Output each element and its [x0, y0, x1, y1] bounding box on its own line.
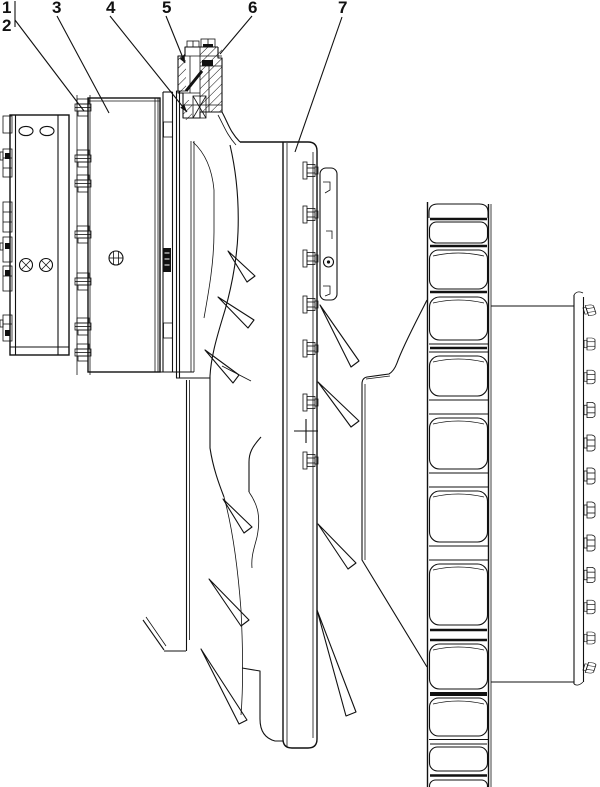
leader-line-7 — [295, 17, 342, 152]
flange-bolt — [582, 304, 596, 316]
disc-bolt-column — [303, 162, 318, 469]
bearing-block — [164, 323, 173, 338]
callout-label-7: 7 — [338, 0, 347, 17]
sprocket-tooth — [429, 204, 488, 218]
sprocket-tooth — [430, 297, 488, 340]
flange-bolt-ring — [574, 292, 596, 685]
flange-bolt — [584, 338, 595, 350]
disc-bolt — [303, 250, 318, 267]
sprocket-teeth — [428, 202, 492, 787]
disc-bolt — [303, 296, 318, 313]
disc-bolt — [303, 394, 318, 411]
flange-bolt — [584, 632, 595, 644]
callout-label-3: 3 — [52, 0, 61, 17]
fan-blade — [318, 382, 359, 427]
fan-blade — [320, 305, 359, 367]
fan-blade — [209, 579, 249, 626]
flange-bolt — [584, 402, 595, 417]
cooler-plate — [0, 115, 69, 355]
sprocket-tooth — [430, 564, 488, 625]
flange-bolt — [584, 600, 595, 614]
seal-ring-section — [202, 60, 213, 66]
disc-bolt — [303, 340, 318, 357]
fan-blade — [228, 251, 255, 282]
flange-bolt — [584, 535, 595, 551]
cooler-screw — [40, 259, 53, 272]
retainer-plate — [320, 168, 337, 300]
flange-bolt — [584, 468, 595, 484]
flange-bolt — [584, 370, 595, 384]
hub-cone — [362, 300, 427, 667]
hub-top-bolts — [187, 39, 215, 47]
technical-assembly-drawing: 1 2 3 4 5 6 7 — [0, 0, 600, 787]
sprocket-tooth — [430, 698, 488, 736]
flange-bolt — [582, 662, 596, 674]
sectioned-hub — [178, 39, 240, 145]
callout-label-4: 4 — [106, 0, 116, 17]
sprocket-tooth — [430, 250, 488, 289]
shroud-bottom-step — [242, 668, 283, 741]
fan-blade — [317, 610, 356, 716]
fan-blade — [223, 499, 252, 533]
center-axis-mark — [294, 419, 318, 443]
leader-line-1-2 — [15, 20, 84, 111]
sprocket-tooth — [430, 491, 488, 542]
seal-block — [163, 248, 171, 272]
assembly-drawing-svg: 1 2 3 4 5 6 7 — [0, 0, 600, 787]
callout-label-1: 1 — [2, 0, 11, 17]
sprocket-tooth — [430, 747, 488, 771]
hub-scurve-inner — [218, 115, 236, 145]
sprocket-tooth — [430, 418, 488, 469]
fan-shroud-profile — [143, 142, 283, 741]
flange-bolt — [584, 435, 595, 451]
slot-hole — [40, 126, 54, 135]
flange-bolt — [584, 502, 595, 518]
callout-label-2: 2 — [2, 16, 11, 35]
callout-label-5: 5 — [162, 0, 171, 17]
drive-unit-screw — [109, 251, 123, 265]
slot-hole — [19, 126, 33, 135]
fan-blades — [201, 251, 359, 724]
flange-bolt — [584, 567, 595, 582]
sprocket-tooth — [430, 644, 488, 689]
drum-housing — [491, 306, 574, 682]
bearing-block — [164, 122, 173, 137]
sprocket-tooth — [430, 780, 488, 787]
leader-line-6 — [220, 16, 252, 54]
cooler-screw — [20, 259, 33, 272]
disc-bolt — [303, 162, 318, 179]
drive-unit-body — [88, 98, 160, 372]
hub-scurve-outer — [222, 112, 240, 142]
fan-flange — [160, 91, 210, 378]
disc-bolt — [303, 206, 318, 223]
callout-label-6: 6 — [248, 0, 257, 17]
sprocket-tooth — [430, 222, 488, 243]
disc-bolt — [303, 452, 318, 469]
fan-blade — [218, 297, 254, 328]
fan-blade — [201, 649, 247, 724]
sprocket-tooth — [430, 356, 488, 396]
fan-blade — [318, 524, 356, 569]
bearing-strip — [163, 92, 173, 372]
